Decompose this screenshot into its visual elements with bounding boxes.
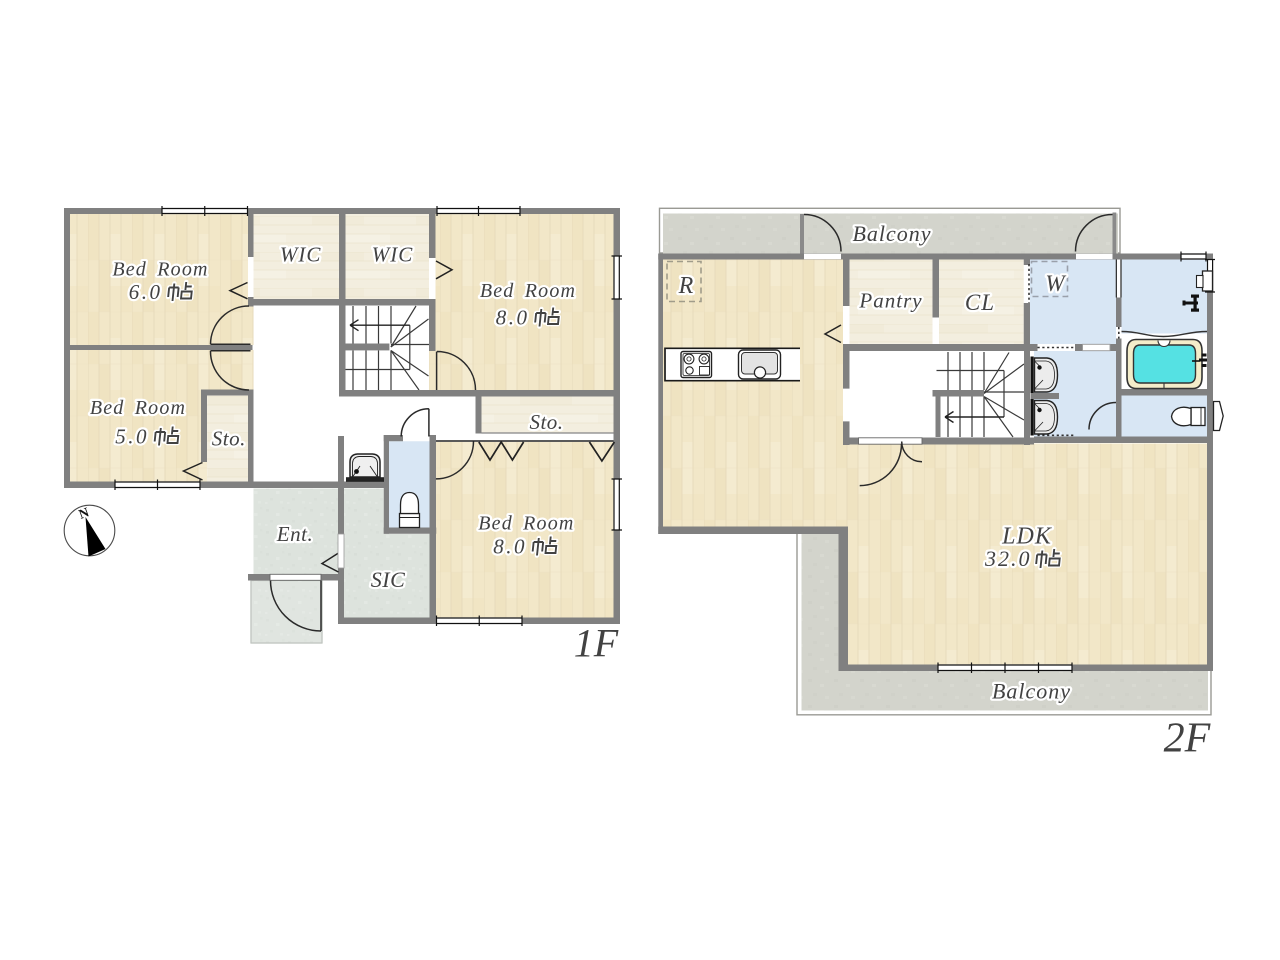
svg-text:Pantry: Pantry — [858, 289, 922, 313]
svg-text:CL: CL — [965, 290, 995, 315]
svg-text:R: R — [678, 273, 694, 299]
svg-text:32.0: 32.0 — [984, 546, 1032, 571]
svg-text:1F: 1F — [574, 621, 619, 666]
svg-text:W: W — [1045, 271, 1066, 296]
svg-text:Bed Room: Bed Room — [480, 280, 576, 302]
svg-text:Sto.: Sto. — [529, 410, 563, 434]
svg-text:Balcony: Balcony — [852, 221, 931, 246]
svg-text:2F: 2F — [1164, 716, 1211, 762]
svg-text:N: N — [77, 504, 92, 522]
svg-text:6.0: 6.0 — [129, 280, 163, 304]
svg-text:Bed Room: Bed Room — [112, 259, 208, 281]
svg-text:Bed Room: Bed Room — [478, 513, 574, 535]
svg-text:8.0: 8.0 — [496, 306, 530, 330]
svg-text:Bed Room: Bed Room — [90, 397, 186, 419]
svg-text:WIC: WIC — [372, 243, 414, 267]
svg-text:SIC: SIC — [371, 567, 406, 592]
svg-text:Sto.: Sto. — [212, 427, 246, 451]
svg-text:Balcony: Balcony — [992, 679, 1071, 704]
svg-text:8.0: 8.0 — [493, 535, 527, 559]
svg-text:Ent.: Ent. — [276, 522, 313, 546]
svg-text:WIC: WIC — [280, 243, 322, 267]
svg-text:5.0: 5.0 — [115, 425, 149, 449]
